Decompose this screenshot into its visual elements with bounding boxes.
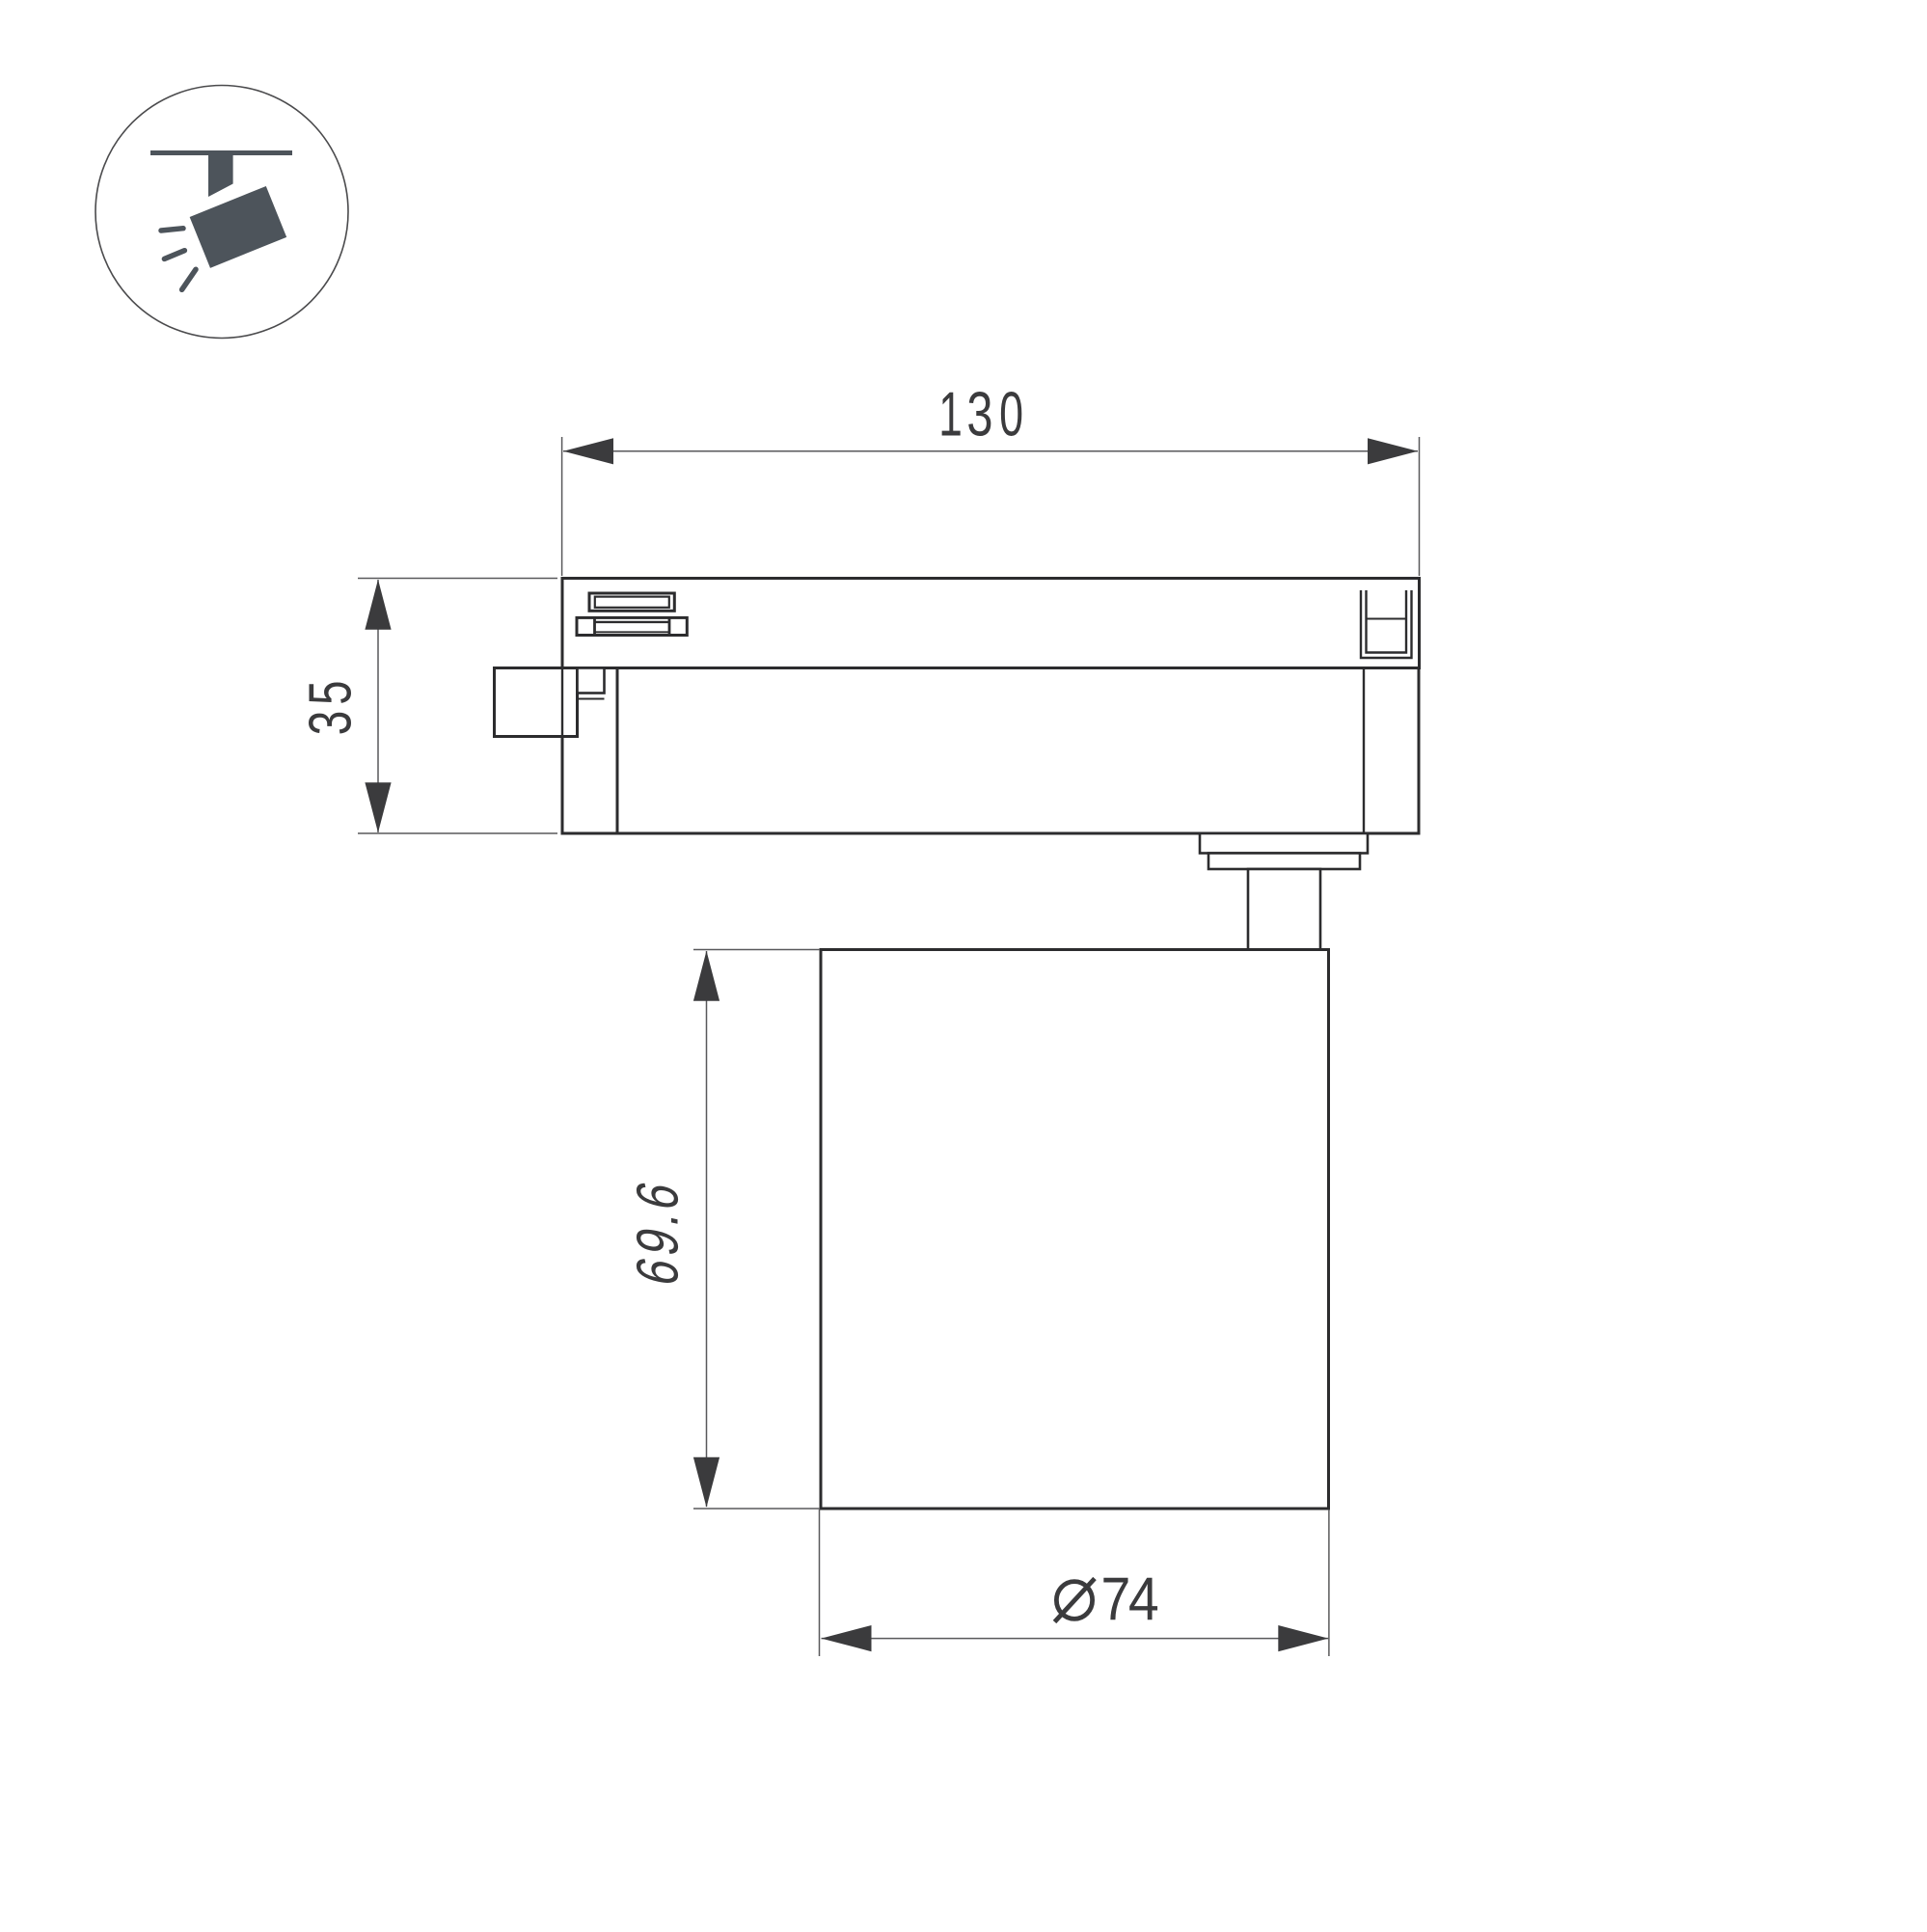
svg-text:7: 7 xyxy=(1100,1565,1130,1633)
svg-text:3: 3 xyxy=(297,711,364,736)
svg-text:3: 3 xyxy=(966,380,992,449)
svg-text:4: 4 xyxy=(1128,1565,1159,1633)
svg-text:5: 5 xyxy=(296,681,364,705)
svg-text:1: 1 xyxy=(938,379,963,449)
svg-text:0: 0 xyxy=(999,378,1023,449)
